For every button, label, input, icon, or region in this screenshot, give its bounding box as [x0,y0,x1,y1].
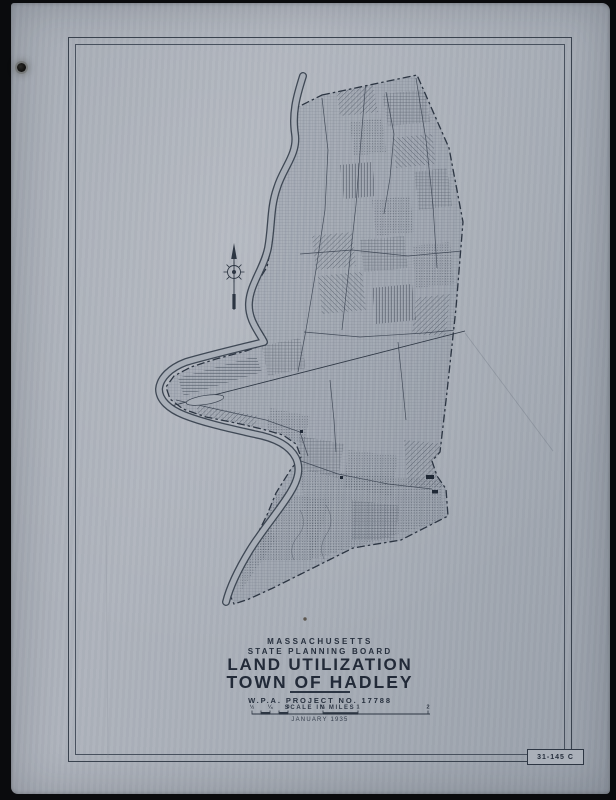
arrow-tail-bar [232,294,235,309]
north-arrowhead [231,243,237,259]
paper-crease [465,333,553,451]
land-use-parcel [350,118,386,156]
land-use-parcel [372,196,414,236]
compass-rose-icon [224,262,245,283]
scale-label: 0 [286,705,289,711]
sheet-number: 31-145 C [537,754,574,761]
land-use-parcel [412,294,450,336]
sheet-number-box: 31-145 C [527,749,584,765]
land-use-parcel [412,242,454,288]
land-use-parcel [352,500,400,540]
land-use-parcel [392,134,436,168]
scale-bar: ½ ¼ 0 ½ 1 2 [250,704,430,715]
photographed-map-sheet: ½ ¼ 0 ½ 1 2 MASSACHUSETTS STATE PLANNING… [0,0,616,800]
scale-label: ½ [321,704,326,711]
scale-label: ½ [250,704,255,711]
paper-speck [303,617,306,620]
land-use-parcel [360,236,408,272]
scale-label: 1 [356,705,359,711]
scale-label: 2 [426,705,429,711]
north-arrow [224,243,245,310]
land-use-parcel [372,284,416,324]
scale-label: ¼ [268,704,273,711]
paper-crease [106,520,108,758]
land-use-parcel [318,272,366,314]
map-artwork: ½ ¼ 0 ½ 1 2 [0,0,616,800]
